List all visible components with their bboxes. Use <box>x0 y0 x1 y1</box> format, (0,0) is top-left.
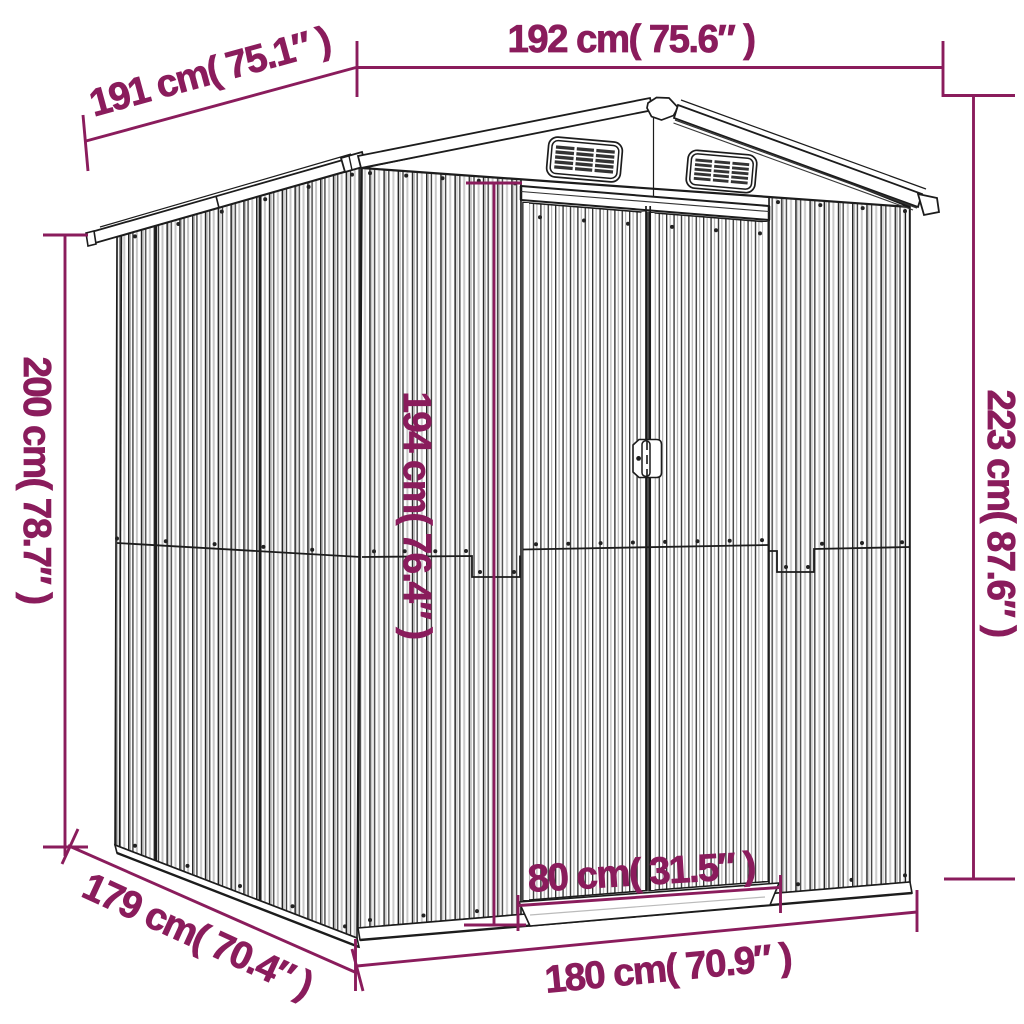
svg-text:192 cm( 75.6″ ): 192 cm( 75.6″ ) <box>508 18 755 61</box>
svg-text:200 cm( 78.7″ ): 200 cm( 78.7″ ) <box>15 357 58 604</box>
svg-text:223 cm( 87.6″ ): 223 cm( 87.6″ ) <box>979 390 1022 637</box>
svg-text:194 cm( 76.4″ ): 194 cm( 76.4″ ) <box>395 392 438 639</box>
